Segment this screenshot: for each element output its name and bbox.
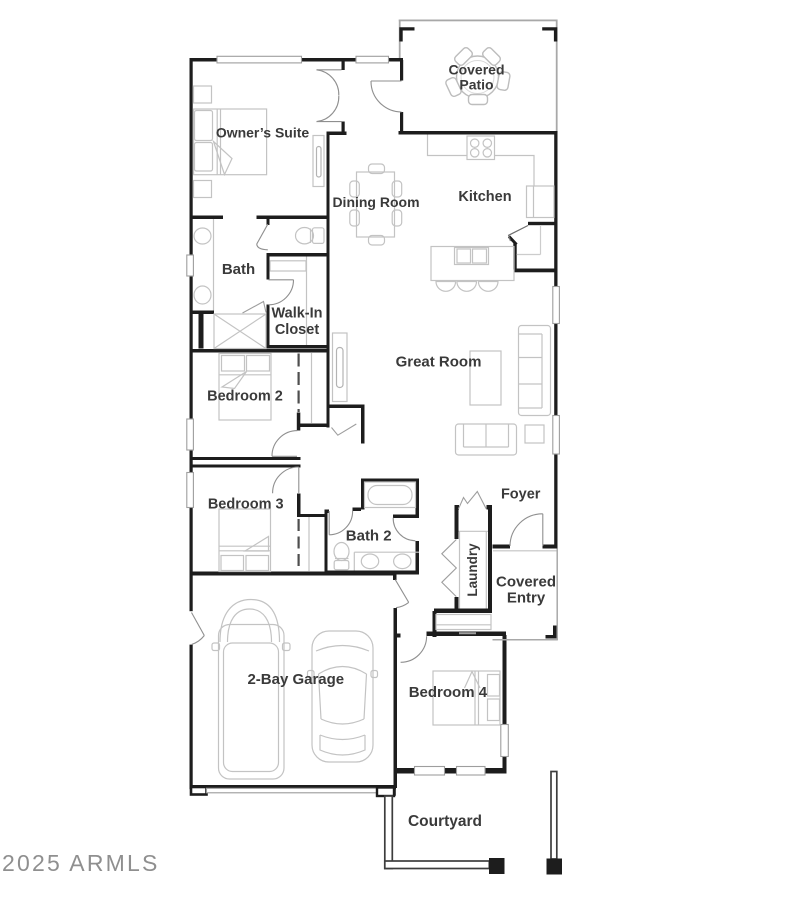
svg-text:Bath: Bath — [222, 261, 255, 278]
svg-text:Patio: Patio — [459, 77, 493, 93]
svg-text:Foyer: Foyer — [501, 487, 541, 503]
svg-text:Walk-In: Walk-In — [271, 306, 322, 322]
svg-text:Owner’s Suite: Owner’s Suite — [216, 125, 310, 141]
svg-text:Bedroom 3: Bedroom 3 — [208, 497, 284, 513]
svg-text:Kitchen: Kitchen — [458, 189, 511, 205]
svg-text:Covered: Covered — [496, 574, 556, 591]
svg-text:Bedroom 4: Bedroom 4 — [409, 684, 488, 701]
svg-text:Dining Room: Dining Room — [332, 194, 419, 210]
svg-text:Laundry: Laundry — [465, 543, 480, 597]
svg-text:Great Room: Great Room — [396, 354, 482, 371]
svg-text:Bath 2: Bath 2 — [346, 527, 392, 544]
svg-text:Entry: Entry — [507, 590, 546, 607]
svg-text:Covered: Covered — [448, 62, 504, 78]
svg-text:2-Bay Garage: 2-Bay Garage — [247, 671, 344, 688]
svg-text:Courtyard: Courtyard — [408, 813, 482, 830]
svg-text:Bedroom 2: Bedroom 2 — [207, 389, 283, 405]
svg-text:Closet: Closet — [275, 322, 319, 338]
svg-text:2025 ARMLS: 2025 ARMLS — [2, 850, 160, 876]
